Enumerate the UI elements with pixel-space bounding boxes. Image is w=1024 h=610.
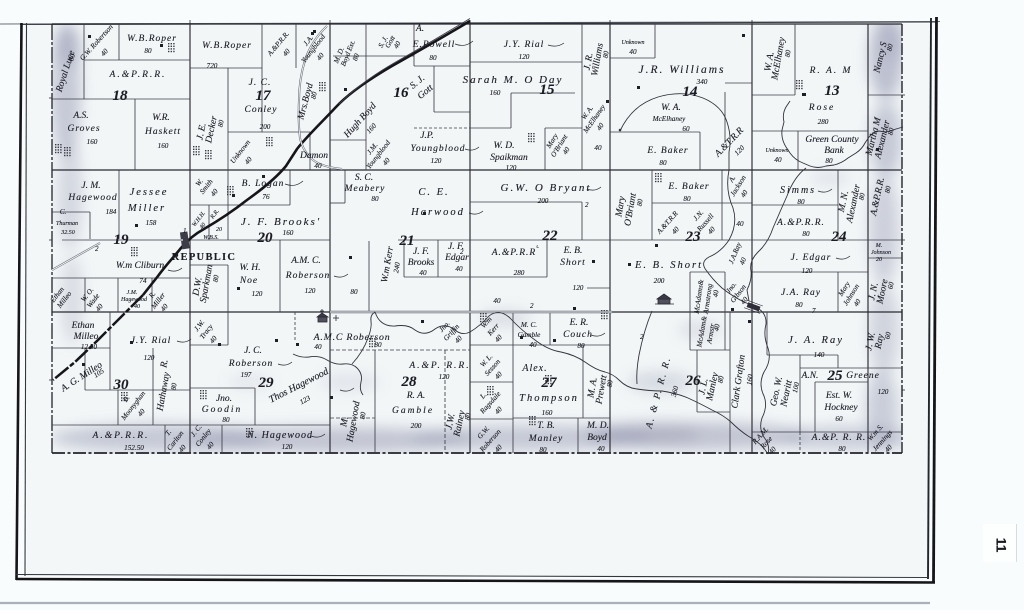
svg-text:197: 197	[241, 371, 252, 379]
svg-text:Unknown: Unknown	[766, 148, 789, 154]
svg-text:Goodin: Goodin	[202, 405, 243, 415]
svg-text:15: 15	[540, 82, 556, 98]
svg-text:Roberson: Roberson	[228, 359, 273, 369]
svg-text:2: 2	[460, 248, 464, 256]
svg-text:Unknown: Unknown	[622, 40, 645, 46]
svg-text:Spaikman: Spaikman	[490, 153, 528, 163]
svg-text:2: 2	[95, 245, 99, 253]
svg-text:40: 40	[774, 156, 782, 164]
svg-text:T. B.: T. B.	[537, 421, 555, 431]
svg-text:E. Baker: E. Baker	[646, 146, 688, 156]
svg-text:80: 80	[683, 195, 691, 203]
svg-text:200: 200	[654, 277, 665, 285]
svg-text:40: 40	[629, 48, 637, 56]
svg-text:J. M.: J. M.	[81, 181, 100, 191]
svg-text:80: 80	[802, 230, 810, 238]
svg-text:B. Logan: B. Logan	[242, 179, 285, 189]
svg-text:Meabery: Meabery	[344, 184, 386, 194]
svg-text:C. E.: C. E.	[418, 187, 449, 198]
svg-text:120: 120	[802, 267, 813, 275]
svg-text:W. H.: W. H.	[239, 263, 260, 273]
svg-text:Hagewood: Hagewood	[67, 193, 117, 203]
svg-text:C.: C.	[60, 208, 67, 216]
svg-text:200: 200	[260, 123, 271, 131]
svg-text:A.: A.	[415, 24, 424, 34]
svg-text:Groves: Groves	[67, 124, 100, 134]
svg-text:Couch: Couch	[563, 330, 593, 340]
svg-text:14: 14	[683, 84, 699, 100]
svg-text:74: 74	[139, 277, 147, 285]
svg-text:J.P.: J.P.	[420, 131, 434, 141]
svg-text:2: 2	[530, 302, 534, 310]
svg-text:Damon: Damon	[299, 151, 328, 161]
svg-text:Est. W.: Est. W.	[825, 391, 852, 401]
svg-text:W.B.Roper: W.B.Roper	[127, 34, 177, 44]
svg-text:W. A.: W. A.	[661, 103, 681, 113]
svg-text:R. A. M: R. A. M	[809, 66, 853, 76]
svg-text:184: 184	[106, 208, 117, 216]
svg-text:2: 2	[585, 201, 589, 209]
svg-text:120: 120	[305, 287, 316, 295]
svg-text:12.50: 12.50	[81, 343, 98, 351]
svg-text:120: 120	[252, 290, 263, 298]
svg-text:140: 140	[814, 351, 825, 359]
svg-text:J.Y. Rial: J.Y. Rial	[504, 40, 545, 50]
svg-text:158: 158	[146, 219, 157, 227]
svg-text:W.R.: W.R.	[152, 113, 170, 123]
svg-text:Hagewood: Hagewood	[120, 297, 148, 303]
svg-text:200: 200	[411, 422, 422, 430]
svg-text:120: 120	[878, 388, 889, 396]
svg-text:A.&P.R.R.: A.&P.R.R.	[92, 431, 150, 441]
svg-text:J. C.: J. C.	[244, 346, 262, 356]
svg-text:N. Hagewood: N. Hagewood	[246, 430, 313, 441]
svg-text:2: 2	[640, 333, 644, 341]
svg-text:200: 200	[538, 197, 549, 205]
svg-text:152.50: 152.50	[124, 444, 144, 452]
svg-text:A.&P.R.R: A.&P.R.R	[491, 248, 537, 258]
svg-text:A.&P.R.R.: A.&P.R.R.	[109, 70, 167, 80]
svg-text:Haskett: Haskett	[144, 127, 181, 137]
svg-text:80: 80	[539, 446, 547, 454]
svg-text:J. Edgar: J. Edgar	[791, 253, 832, 263]
svg-text:40: 40	[493, 297, 501, 305]
svg-text:25: 25	[827, 368, 844, 384]
svg-text:80: 80	[222, 416, 230, 424]
svg-text:18: 18	[113, 88, 129, 104]
svg-text:E. B. Short: E. B. Short	[634, 260, 703, 271]
svg-text:76: 76	[262, 193, 270, 201]
svg-text:R. A.: R. A.	[406, 391, 426, 401]
svg-text:80: 80	[144, 47, 152, 55]
svg-text:60: 60	[835, 415, 843, 423]
svg-text:W. D.: W. D.	[493, 141, 514, 151]
svg-text:120: 120	[144, 354, 155, 362]
svg-text:29: 29	[258, 375, 275, 391]
svg-text:Alex.: Alex.	[521, 363, 547, 374]
svg-text:⌞: ⌞	[536, 241, 539, 249]
svg-text:A.M. C.: A.M. C.	[290, 256, 321, 266]
svg-text:Noe: Noe	[239, 276, 258, 286]
svg-text:J. A. Ray: J. A. Ray	[788, 335, 844, 346]
svg-text:E. Baker: E. Baker	[667, 182, 709, 192]
svg-text:Boyd: Boyd	[587, 433, 607, 443]
svg-text:24: 24	[831, 229, 848, 245]
svg-text:20: 20	[216, 227, 222, 233]
svg-text:120: 120	[282, 443, 293, 451]
svg-text:20: 20	[257, 230, 274, 246]
svg-text:A.&P. R.R.: A.&P. R.R.	[408, 361, 470, 371]
svg-text:1: 1	[183, 227, 187, 235]
svg-text:40: 40	[594, 144, 602, 152]
svg-text:Youngblood: Youngblood	[410, 144, 465, 154]
svg-text:Gamble: Gamble	[392, 406, 434, 416]
svg-text:720: 720	[207, 62, 218, 70]
svg-text:40: 40	[134, 303, 140, 310]
svg-text:J. F.: J. F.	[413, 247, 429, 257]
svg-text:G.W. O Bryant: G.W. O Bryant	[501, 182, 592, 194]
svg-text:Thompson: Thompson	[519, 393, 579, 404]
svg-text:S. C.: S. C.	[355, 173, 373, 183]
svg-text:M. D.: M. D.	[586, 421, 609, 431]
svg-text:M. C.: M. C.	[520, 321, 537, 329]
svg-text:23: 23	[685, 229, 702, 245]
svg-text:W.m Cliburn: W.m Cliburn	[116, 261, 164, 271]
svg-text:160: 160	[490, 89, 501, 97]
svg-text:40: 40	[597, 445, 605, 453]
svg-text:80: 80	[350, 288, 358, 296]
svg-text:160: 160	[542, 409, 553, 417]
svg-text:J.M.: J.M.	[127, 290, 138, 296]
svg-text:30: 30	[113, 377, 130, 393]
svg-text:W.B.Roper: W.B.Roper	[202, 41, 252, 51]
svg-text:J. C.: J. C.	[249, 78, 272, 88]
svg-text:A.S.: A.S.	[72, 111, 88, 121]
svg-text:Hockney: Hockney	[823, 403, 858, 413]
svg-text:40: 40	[736, 220, 744, 228]
svg-text:20: 20	[876, 257, 882, 263]
svg-text:80: 80	[429, 54, 437, 62]
svg-text:80: 80	[374, 341, 382, 349]
svg-text:120: 120	[431, 157, 442, 165]
svg-text:40: 40	[529, 341, 537, 349]
svg-text:80: 80	[577, 342, 585, 350]
svg-text:Rose: Rose	[808, 103, 835, 113]
svg-text:160: 160	[283, 229, 294, 237]
svg-text:80: 80	[371, 195, 379, 203]
svg-text:A.&P. R. R.: A.&P. R. R.	[811, 433, 867, 443]
svg-text:J. F. Brooks': J. F. Brooks'	[241, 216, 321, 228]
svg-text:120: 120	[519, 53, 530, 61]
svg-text:80: 80	[659, 159, 667, 167]
svg-text:17: 17	[256, 88, 272, 104]
svg-text:80: 80	[795, 301, 803, 309]
svg-text:160: 160	[745, 373, 754, 385]
svg-text:Harwood: Harwood	[410, 207, 465, 218]
svg-text:120: 120	[573, 284, 584, 292]
svg-text:Milleo: Milleo	[73, 332, 99, 342]
svg-text:80: 80	[825, 157, 833, 165]
svg-text:40: 40	[455, 265, 463, 273]
svg-text:Jno.: Jno.	[216, 394, 232, 404]
svg-text:A.N.: A.N.	[801, 371, 819, 381]
svg-text:16: 16	[394, 85, 410, 101]
svg-text:A.&P.R.R.: A.&P.R.R.	[776, 218, 825, 228]
svg-text:7: 7	[812, 307, 816, 315]
svg-text:M.: M.	[875, 243, 883, 249]
svg-text:13: 13	[825, 83, 841, 99]
svg-text:11: 11	[993, 538, 1009, 553]
svg-text:Ethan: Ethan	[71, 321, 95, 331]
svg-text:REPUBLIC: REPUBLIC	[172, 252, 237, 263]
svg-text:Manley: Manley	[528, 434, 564, 444]
svg-text:Jessee: Jessee	[130, 187, 169, 198]
svg-text:Greene: Greene	[846, 371, 880, 381]
svg-text:McElhaney: McElhaney	[652, 115, 687, 123]
svg-text:E. B.: E. B.	[563, 246, 583, 256]
svg-text:Edgar: Edgar	[444, 253, 469, 263]
svg-text:J.R. Williams: J.R. Williams	[638, 64, 725, 76]
svg-text:40: 40	[314, 343, 322, 351]
svg-text:Green County: Green County	[805, 135, 859, 145]
svg-text:R.: R.	[159, 359, 170, 370]
svg-text:Brooks: Brooks	[408, 258, 435, 268]
svg-text:120: 120	[439, 373, 450, 381]
svg-text:J.A. Ray: J.A. Ray	[781, 288, 821, 298]
svg-text:32.50: 32.50	[60, 230, 75, 236]
svg-text:28: 28	[401, 374, 418, 390]
svg-text:80: 80	[838, 445, 846, 453]
svg-text:Johnson: Johnson	[871, 250, 891, 256]
svg-text:60: 60	[682, 125, 690, 133]
svg-text:W.B.S.: W.B.S.	[203, 235, 219, 241]
svg-text:Thurman: Thurman	[56, 221, 78, 227]
svg-text:E. R.: E. R.	[569, 318, 589, 328]
svg-text:Bank: Bank	[824, 146, 844, 156]
svg-text:Conley: Conley	[245, 105, 278, 115]
svg-text:Roberson: Roberson	[285, 271, 330, 281]
svg-text:160: 160	[87, 138, 98, 146]
svg-text:280: 280	[514, 269, 525, 277]
svg-text:Miller: Miller	[127, 203, 166, 214]
svg-text:19: 19	[114, 232, 130, 248]
svg-text:40: 40	[314, 162, 322, 170]
svg-text:J.Y. Rial: J.Y. Rial	[131, 336, 172, 346]
svg-text:80: 80	[797, 198, 805, 206]
svg-text:Simms: Simms	[780, 185, 816, 196]
svg-text:E.Powell: E.Powell	[412, 40, 456, 50]
svg-text:22: 22	[542, 228, 559, 244]
svg-text:40: 40	[419, 269, 427, 277]
svg-text:120: 120	[506, 164, 517, 172]
svg-text:Short: Short	[560, 258, 586, 268]
svg-text:280: 280	[818, 118, 829, 126]
svg-text:160: 160	[158, 142, 169, 150]
